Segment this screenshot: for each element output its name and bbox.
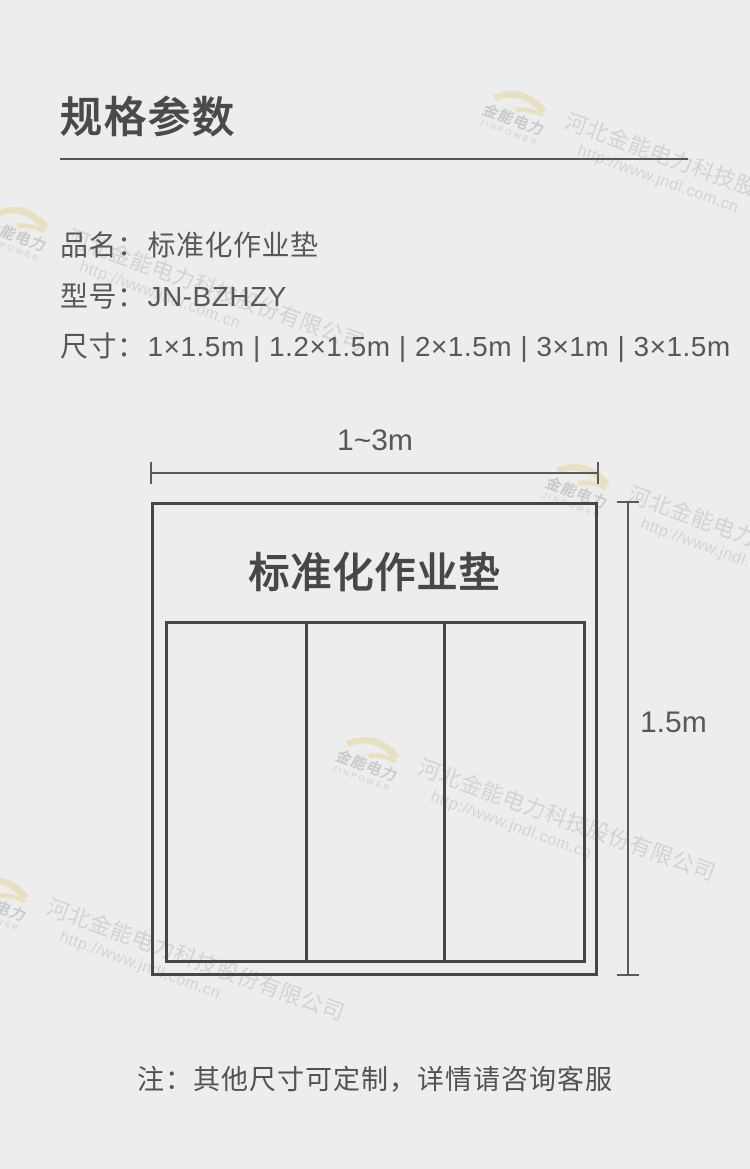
- jinpower-logo: 金能电力 JINPOWER: [0, 194, 58, 266]
- jinpower-logo-subtext: JINPOWER: [0, 904, 22, 934]
- jinpower-logo-swoosh-icon: [488, 79, 553, 124]
- width-dimension-line: [151, 472, 599, 474]
- height-dimension-label: 1.5m: [640, 706, 707, 740]
- product-name-label: 品名：: [60, 230, 146, 261]
- jinpower-logo: 金能电力 JINPOWER: [0, 864, 38, 936]
- watermark: 金能电力 JINPOWER 河北金能电力科技股份有限公司 http://www.…: [473, 68, 750, 271]
- watermark-company: 河北金能电力科技股份有限公司: [561, 108, 750, 240]
- jinpower-logo-text: 金能电力: [0, 889, 29, 926]
- height-dimension-line: [627, 502, 629, 976]
- jinpower-logo-swoosh-icon: [0, 865, 35, 910]
- jinpower-logo: 金能电力 JINPOWER: [476, 78, 556, 150]
- watermark-company: 河北金能电力科技股份有限公司: [624, 481, 750, 613]
- height-dimension-tick-top: [617, 501, 639, 503]
- mat-diagram: 标准化作业垫: [151, 502, 598, 976]
- jinpower-logo-swoosh-icon: [0, 195, 55, 240]
- jinpower-logo-subtext: JINPOWER: [478, 118, 540, 148]
- model-label: 型号：: [60, 281, 146, 312]
- size-label: 尺寸：: [60, 331, 146, 362]
- jinpower-logo-swoosh-icon: [551, 452, 616, 497]
- product-name-value: 标准化作业垫: [148, 230, 319, 261]
- jinpower-logo-text: 金能电力: [479, 103, 547, 140]
- width-dimension-label: 1~3m: [151, 424, 599, 458]
- width-dimension-tick-left: [150, 462, 152, 484]
- watermark-url: http://www.jndl.com.cn: [638, 515, 750, 632]
- mat-section-divider: [443, 624, 446, 960]
- title-divider: [60, 158, 688, 160]
- model-row: 型号：JN-BZHZY: [60, 275, 287, 315]
- customization-note: 注：其他尺寸可定制，详情请咨询客服: [0, 1058, 750, 1097]
- model-value: JN-BZHZY: [148, 281, 287, 312]
- height-dimension-tick-bottom: [617, 974, 639, 976]
- width-dimension-tick-right: [597, 462, 599, 484]
- size-row: 尺寸：1×1.5m | 1.2×1.5m | 2×1.5m | 3×1m | 3…: [60, 325, 731, 365]
- jinpower-logo-subtext: JINPOWER: [0, 234, 42, 264]
- mat-section-divider: [305, 624, 308, 960]
- mat-inner-grid: [165, 621, 586, 963]
- mat-diagram-title: 标准化作业垫: [154, 539, 595, 599]
- product-spec-page: 金能电力 JINPOWER 河北金能电力科技股份有限公司 http://www.…: [0, 0, 750, 1169]
- size-value: 1×1.5m | 1.2×1.5m | 2×1.5m | 3×1m | 3×1.…: [148, 331, 731, 362]
- product-name-row: 品名：标准化作业垫: [60, 224, 319, 264]
- page-title: 规格参数: [60, 84, 236, 145]
- jinpower-logo-text: 金能电力: [0, 219, 49, 256]
